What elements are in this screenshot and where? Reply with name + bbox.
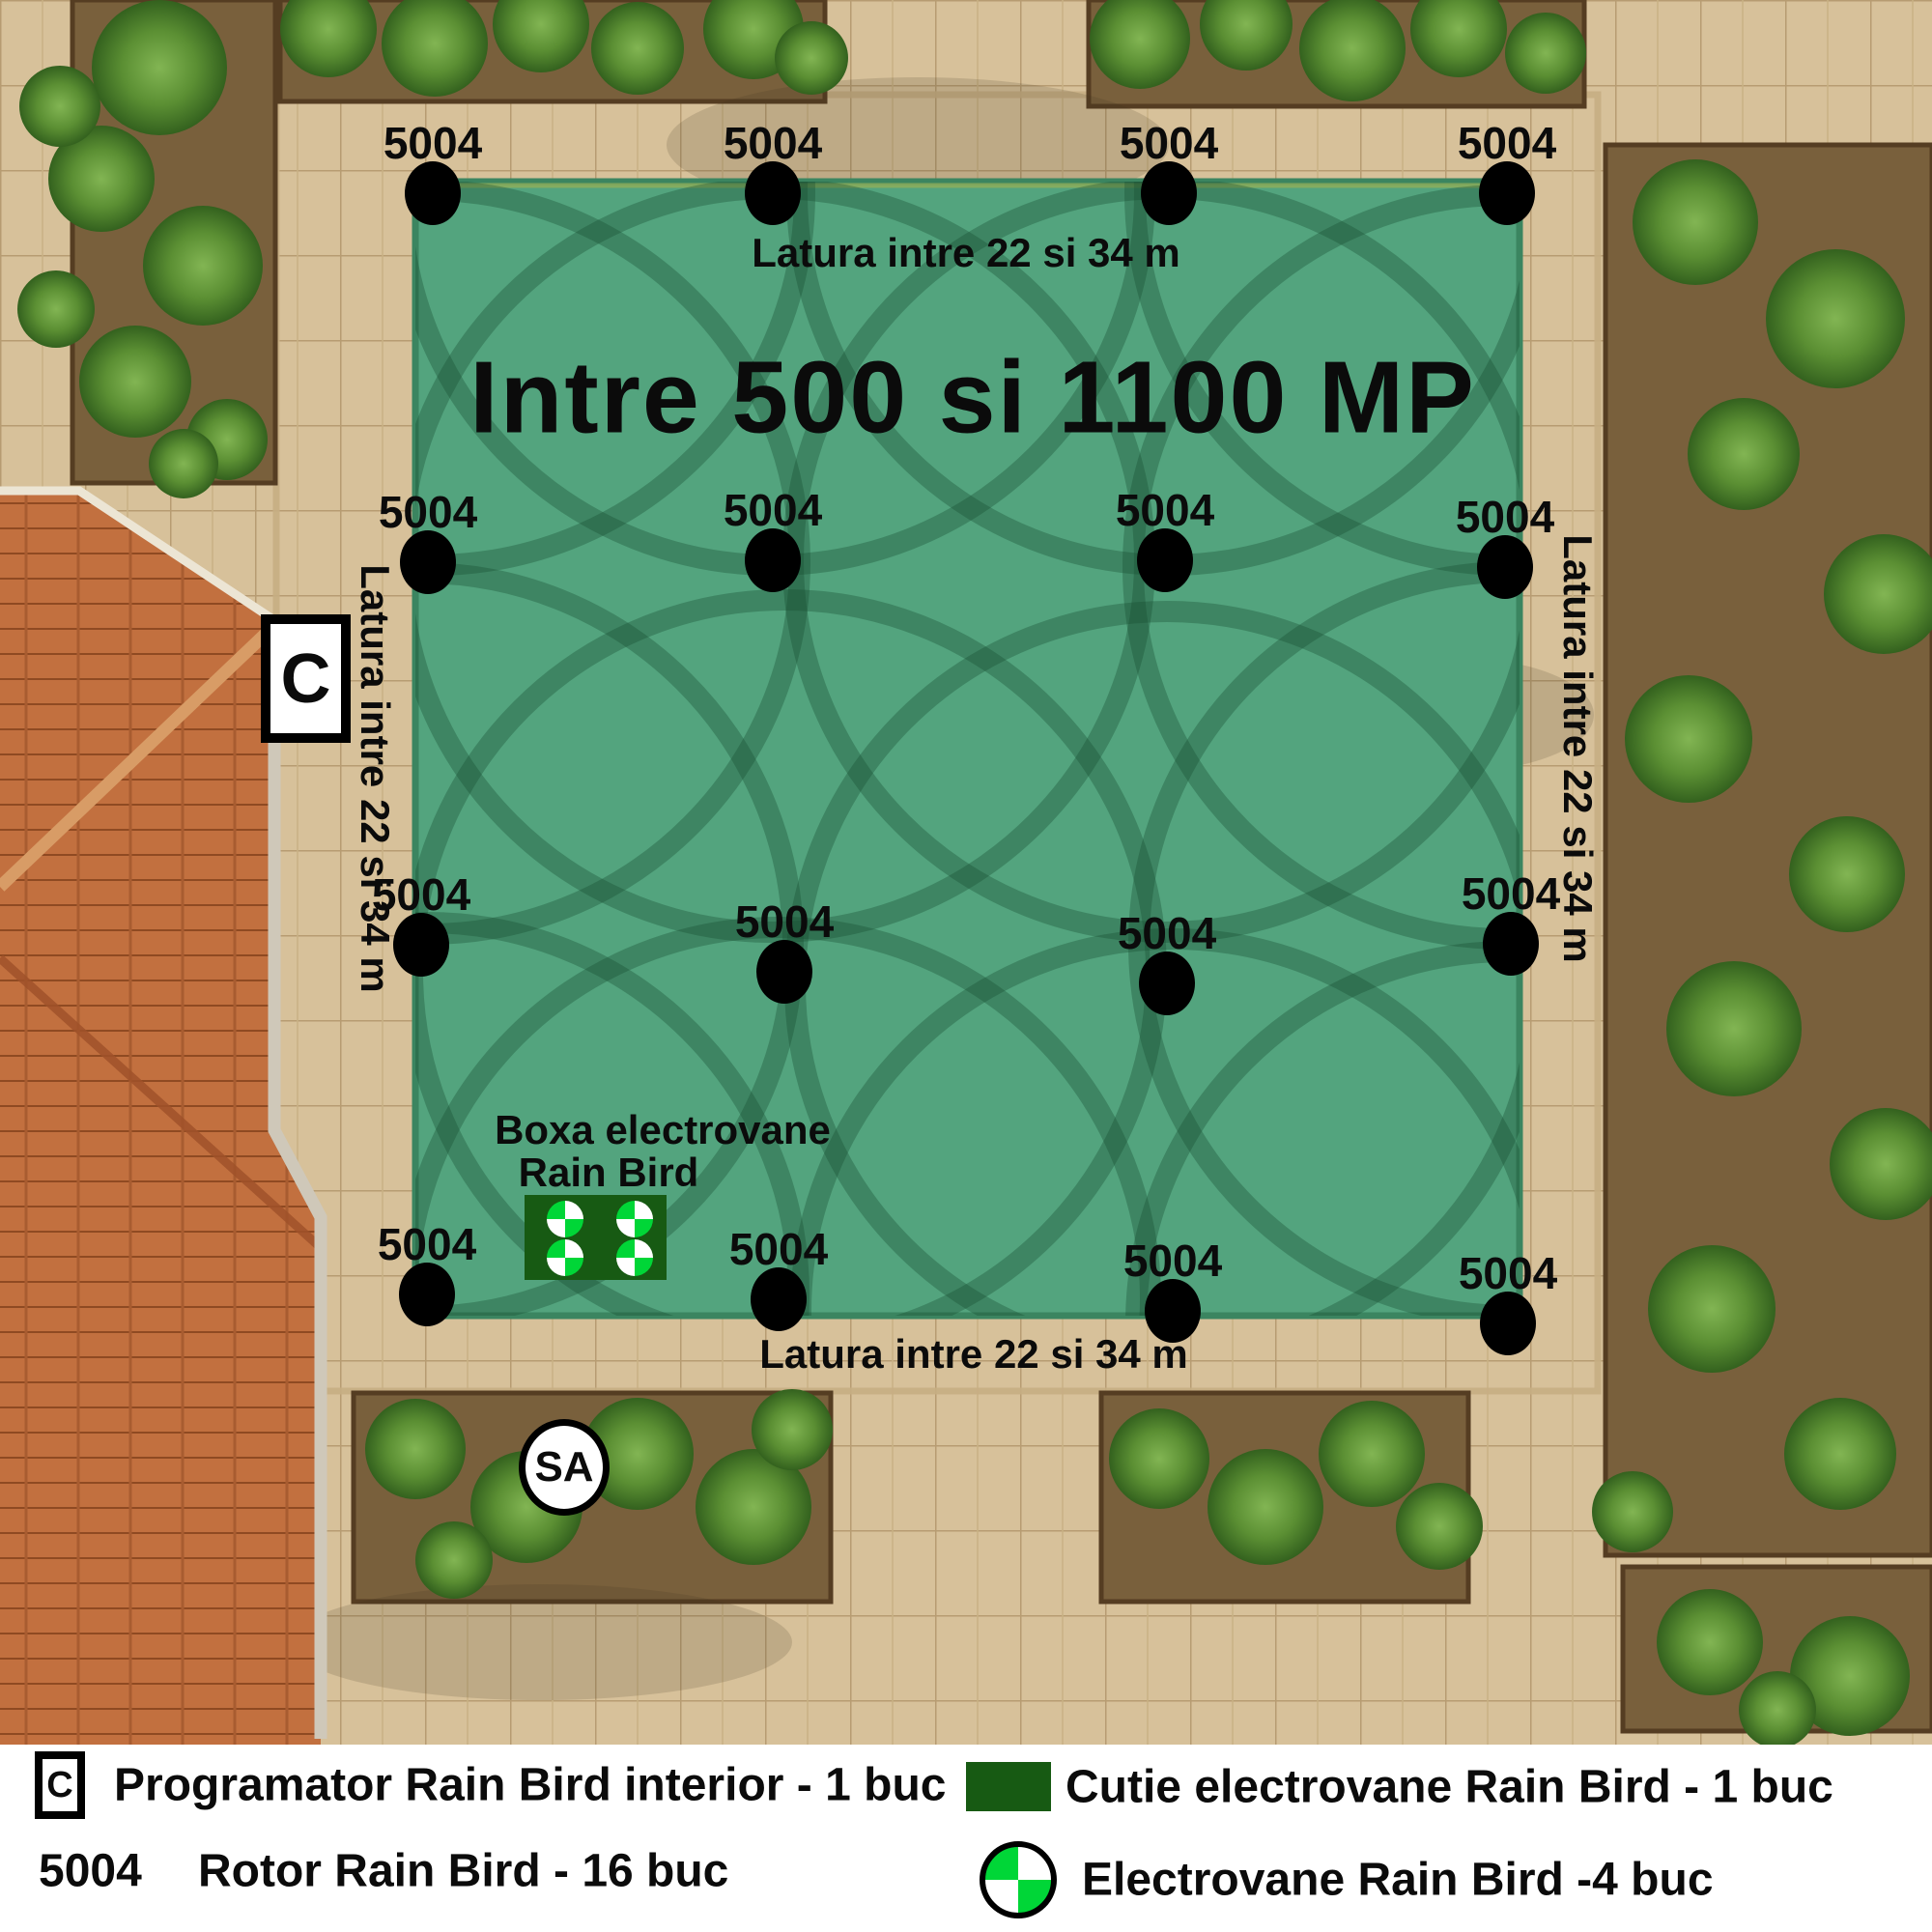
electrovane-icon (547, 1201, 583, 1237)
sprinkler-5004-dot (405, 161, 461, 225)
sprinkler-5004-label: 5004 (724, 484, 822, 536)
controller-marker: C (261, 614, 351, 743)
sprinkler-5004-dot (393, 913, 449, 977)
sprinkler-5004-label: 5004 (372, 868, 470, 921)
legend-rotor-code: 5004 (39, 1845, 142, 1898)
sprinkler-5004-label: 5004 (1116, 484, 1214, 536)
sprinkler-5004-dot (1139, 952, 1195, 1015)
sprinkler-5004-dot (1137, 528, 1193, 592)
legend: C Programator Rain Bird interior - 1 buc… (0, 1745, 1932, 1932)
valve-box (525, 1195, 667, 1280)
sprinkler-5004-label: 5004 (735, 895, 834, 948)
sprinkler-5004-label: 5004 (1459, 1247, 1557, 1299)
sprinkler-5004-dot (756, 940, 812, 1004)
garden-aerial-background (0, 0, 1932, 1932)
sprinkler-5004-label: 5004 (1462, 867, 1560, 920)
sprinkler-5004-dot (751, 1267, 807, 1331)
legend-controller-label: Programator Rain Bird interior - 1 buc (114, 1759, 946, 1812)
legend-valve-box-icon (966, 1762, 1051, 1811)
sprinkler-5004-dot (745, 161, 801, 225)
irrigation-plan: Intre 500 si 1100 MP Latura intre 22 si … (0, 0, 1932, 1932)
electrovane-icon (547, 1239, 583, 1276)
sprinkler-5004-dot (1477, 535, 1533, 599)
valve-box-label-line2: Rain Bird (519, 1150, 699, 1196)
sprinkler-5004-label: 5004 (1456, 491, 1554, 543)
supply-marker: SA (519, 1419, 610, 1516)
sprinkler-5004-dot (1145, 1279, 1201, 1343)
side-label-bottom: Latura intre 22 si 34 m (759, 1331, 1188, 1378)
sprinkler-5004-dot (1483, 912, 1539, 976)
legend-valve-box-label: Cutie electrovane Rain Bird - 1 buc (1065, 1761, 1833, 1814)
electrovane-icon (616, 1201, 653, 1237)
sprinkler-5004-label: 5004 (384, 117, 482, 169)
sprinkler-5004-dot (745, 528, 801, 592)
sprinkler-5004-label: 5004 (1118, 907, 1216, 959)
sprinkler-5004-dot (1141, 161, 1197, 225)
sprinkler-5004-label: 5004 (729, 1223, 828, 1275)
legend-electrovane-label: Electrovane Rain Bird -4 buc (1082, 1854, 1714, 1907)
sprinkler-5004-dot (1479, 161, 1535, 225)
side-label-right: Latura intre 22 si 34 m (1554, 534, 1601, 963)
sprinkler-5004-dot (1480, 1292, 1536, 1355)
plan-title: Intre 500 si 1100 MP (469, 340, 1476, 457)
legend-controller-letter: C (46, 1765, 72, 1806)
valve-box-label-line1: Boxa electrovane (495, 1107, 831, 1153)
legend-controller-icon: C (35, 1751, 85, 1819)
sprinkler-5004-label: 5004 (1120, 117, 1218, 169)
sprinkler-5004-label: 5004 (378, 1218, 476, 1270)
sprinkler-5004-dot (400, 530, 456, 594)
sprinkler-5004-label: 5004 (724, 117, 822, 169)
side-label-top: Latura intre 22 si 34 m (752, 230, 1180, 276)
sprinkler-5004-label: 5004 (379, 486, 477, 538)
side-label-left: Latura intre 22 si 34 m (352, 564, 398, 993)
sprinkler-5004-label: 5004 (1123, 1235, 1222, 1287)
supply-marker-letters: SA (534, 1443, 593, 1492)
electrovane-icon (616, 1239, 653, 1276)
controller-marker-letter: C (281, 639, 331, 719)
sprinkler-5004-dot (399, 1263, 455, 1326)
sprinkler-5004-label: 5004 (1458, 117, 1556, 169)
legend-rotor-label: Rotor Rain Bird - 16 buc (198, 1845, 728, 1898)
legend-electrovane-icon (980, 1841, 1057, 1918)
